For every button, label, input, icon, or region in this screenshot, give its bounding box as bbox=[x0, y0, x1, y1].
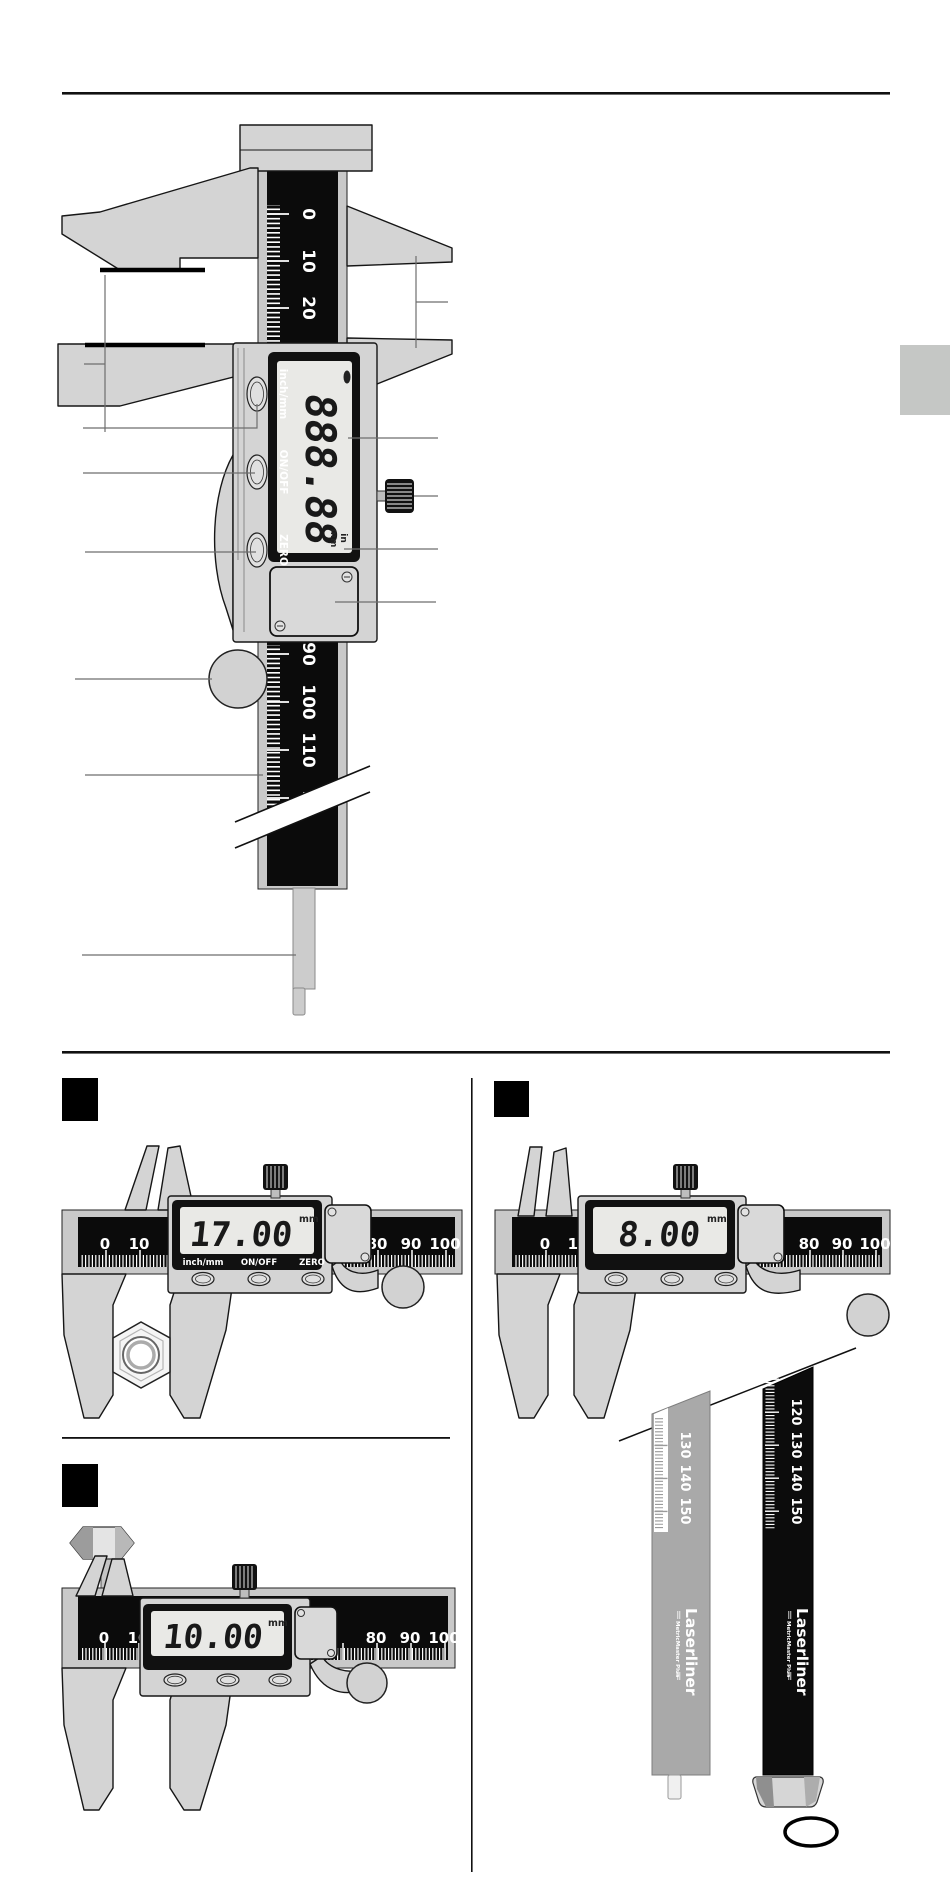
hex-nut-workpiece bbox=[753, 1777, 823, 1807]
example-3-bolt-measurement: 0 10 80 90 100 10.00 mm bbox=[62, 1464, 460, 1810]
button-label: ON/OFF bbox=[277, 450, 289, 495]
scale-number-130: 130 bbox=[677, 1431, 692, 1458]
brand-name: Laserliner bbox=[793, 1608, 811, 1696]
thumbwheel-knurling bbox=[387, 484, 412, 508]
button-label: ZERO bbox=[299, 1258, 325, 1268]
thumbwheel bbox=[263, 1164, 288, 1198]
battery-screw bbox=[741, 1208, 749, 1216]
on-off-button bbox=[247, 455, 267, 489]
lower-scale-number-100: 100 bbox=[298, 684, 318, 720]
thumbwheel bbox=[673, 1164, 698, 1198]
example-2-inside-measurement: 0 10 80 90 100 8.00 mm bbox=[494, 1081, 891, 1418]
battery-compartment bbox=[295, 1607, 337, 1659]
scale-number: 0 bbox=[100, 1235, 110, 1253]
scale-number: 80 bbox=[799, 1235, 820, 1253]
lcd-display: 8.00 mm bbox=[585, 1200, 735, 1270]
buttons bbox=[164, 1674, 291, 1686]
battery-compartment bbox=[325, 1205, 371, 1263]
zero-button-label: ZERO bbox=[277, 534, 289, 566]
product-name: MetricMaster Plus bbox=[785, 1621, 791, 1678]
zero-button bbox=[247, 533, 267, 567]
example-3-marker bbox=[62, 1464, 98, 1507]
thumbwheel bbox=[377, 479, 414, 513]
fixed-jaw bbox=[497, 1274, 560, 1418]
fixed-inside-knife bbox=[347, 206, 452, 266]
scale-number-140: 140 bbox=[677, 1464, 692, 1491]
scale-number: 0 bbox=[540, 1235, 550, 1253]
column-divider bbox=[471, 1078, 473, 1872]
thumb-grip bbox=[215, 455, 233, 630]
scale-number: 0 bbox=[298, 208, 318, 220]
button-label: ON/OFF bbox=[241, 1258, 277, 1268]
bolt-head-facet bbox=[115, 1527, 134, 1559]
inside-knife bbox=[125, 1146, 159, 1210]
thumb-roller bbox=[847, 1294, 889, 1336]
scale-number: 80 bbox=[366, 1629, 387, 1647]
depth-beam-gray: 130 140 150 Laserliner MetricMaster Plus bbox=[652, 1391, 710, 1799]
beam-end-cap bbox=[240, 125, 372, 171]
moving-jaw bbox=[170, 1274, 232, 1418]
scale-number: 100 bbox=[859, 1235, 890, 1253]
scale-number: 150 bbox=[788, 1497, 803, 1524]
inch-mm-button-label: inch/mm bbox=[277, 369, 289, 420]
page-rule-top bbox=[62, 92, 890, 95]
depth-beam-black: 120 130 140 150 Laserliner MetricMaster … bbox=[753, 1367, 823, 1807]
lcd-display: 10.00 mm bbox=[143, 1604, 292, 1670]
scale-number: 20 bbox=[298, 296, 318, 320]
unit-mm: mm bbox=[328, 529, 338, 548]
section-divider bbox=[62, 1051, 890, 1054]
unit-in-label: in bbox=[338, 533, 348, 543]
lcd-digits: 17.00 bbox=[188, 1215, 295, 1255]
example-4-depth-measurement: 130 140 150 Laserliner MetricMaster Plus… bbox=[619, 1348, 856, 1846]
fixed-jaw bbox=[62, 168, 258, 270]
scale-number: 10 bbox=[298, 249, 318, 273]
scale-number-150: 150 bbox=[788, 1497, 803, 1524]
on-off-button-label: ON/OFF bbox=[277, 450, 289, 495]
buttons bbox=[605, 1273, 737, 1286]
scale-number: 130 bbox=[677, 1431, 692, 1458]
main-caliper-diagram: 0 10 20 90 100 110 1 bbox=[58, 125, 452, 1015]
upper-scale-number-20: 20 bbox=[298, 296, 318, 320]
hole-outline bbox=[785, 1818, 837, 1846]
button-label: inch/mm bbox=[277, 369, 289, 420]
subsection-divider-left-column bbox=[62, 1437, 450, 1439]
scale-number: 100 bbox=[429, 1235, 460, 1253]
scale-number: 90 bbox=[400, 1629, 421, 1647]
lcd-value: 10.00 bbox=[162, 1617, 265, 1656]
product-name: MetricMaster Plus bbox=[674, 1621, 680, 1678]
depth-rod bbox=[293, 888, 315, 1015]
inside-knife bbox=[546, 1148, 572, 1216]
scale-number-150: 150 bbox=[677, 1497, 692, 1524]
lcd-digits: 10.00 bbox=[162, 1617, 265, 1656]
scale-number-120: 120 bbox=[788, 1398, 803, 1425]
buttons bbox=[192, 1273, 324, 1286]
upper-scale-number-0: 0 bbox=[298, 208, 318, 220]
moving-jaw bbox=[58, 344, 253, 406]
lower-scale-number-90: 90 bbox=[298, 642, 318, 666]
scale-number: 140 bbox=[677, 1464, 692, 1491]
lcd-unit: mm bbox=[268, 1618, 288, 1629]
scale-number: 0 bbox=[99, 1629, 109, 1647]
thumb-roller bbox=[382, 1266, 424, 1308]
scale-number: 110 bbox=[298, 732, 318, 768]
lcd-value: 8.00 bbox=[616, 1215, 702, 1255]
button-label: ZERO bbox=[277, 534, 289, 566]
battery-screw bbox=[774, 1253, 782, 1261]
lcd-value: 17.00 bbox=[188, 1215, 295, 1255]
manual-illustration: 0 10 20 90 100 110 1 bbox=[0, 0, 950, 1881]
minus-indicator bbox=[344, 371, 351, 384]
lower-scale-number-110: 110 bbox=[298, 732, 318, 768]
unit-mm-label: mm bbox=[328, 529, 338, 548]
example-2-marker bbox=[494, 1081, 529, 1117]
scale-number: 90 bbox=[298, 642, 318, 666]
thumb-roller bbox=[209, 650, 267, 708]
example-1-marker bbox=[62, 1078, 98, 1121]
manual-page: 0 10 20 90 100 110 1 bbox=[0, 0, 950, 1881]
battery-screw bbox=[298, 1610, 305, 1617]
thumb-roller bbox=[347, 1663, 387, 1703]
lcd-digits: 8.00 bbox=[616, 1215, 702, 1255]
page-tab bbox=[900, 345, 950, 415]
unit-in: in bbox=[338, 533, 348, 543]
scale-number: 100 bbox=[298, 684, 318, 720]
scale-number: 90 bbox=[832, 1235, 853, 1253]
bolt-head-facet bbox=[70, 1527, 93, 1559]
depth-rod-tip bbox=[668, 1775, 681, 1799]
scale-number: 130 bbox=[788, 1431, 803, 1458]
scale-number: 90 bbox=[401, 1235, 422, 1253]
lcd-display: 17.00 mm inch/mm ON/OFF ZERO bbox=[172, 1200, 325, 1270]
hex-nut-workpiece bbox=[113, 1322, 170, 1388]
scale-number: 150 bbox=[677, 1497, 692, 1524]
scale-number: 10 bbox=[129, 1235, 150, 1253]
battery-screw bbox=[328, 1208, 336, 1216]
lcd-unit: mm bbox=[299, 1214, 319, 1225]
callout-inch-mm-button bbox=[83, 404, 257, 428]
scale-number-130: 130 bbox=[788, 1431, 803, 1458]
battery-compartment bbox=[738, 1205, 784, 1263]
lcd-unit: mm bbox=[707, 1214, 727, 1225]
scale-number-140: 140 bbox=[788, 1464, 803, 1491]
scale-number: 120 bbox=[788, 1398, 803, 1425]
button-label: inch/mm bbox=[183, 1258, 224, 1268]
brand-name: Laserliner bbox=[682, 1608, 700, 1696]
lcd-value: 888.88 bbox=[296, 391, 345, 549]
upper-scale-number-10: 10 bbox=[298, 249, 318, 273]
example-1-outside-measurement: 0 10 80 90 100 bbox=[62, 1078, 462, 1418]
battery-screw bbox=[328, 1650, 335, 1657]
inside-knife bbox=[518, 1147, 542, 1216]
fixed-jaw bbox=[62, 1668, 126, 1810]
moving-jaw bbox=[574, 1274, 636, 1418]
scale-number: 100 bbox=[428, 1629, 459, 1647]
scale-strip bbox=[654, 1408, 668, 1532]
lcd-digits: 888.88 bbox=[296, 391, 345, 549]
scale-number: 140 bbox=[788, 1464, 803, 1491]
battery-screw bbox=[361, 1253, 369, 1261]
thumbwheel-stem bbox=[377, 491, 386, 501]
